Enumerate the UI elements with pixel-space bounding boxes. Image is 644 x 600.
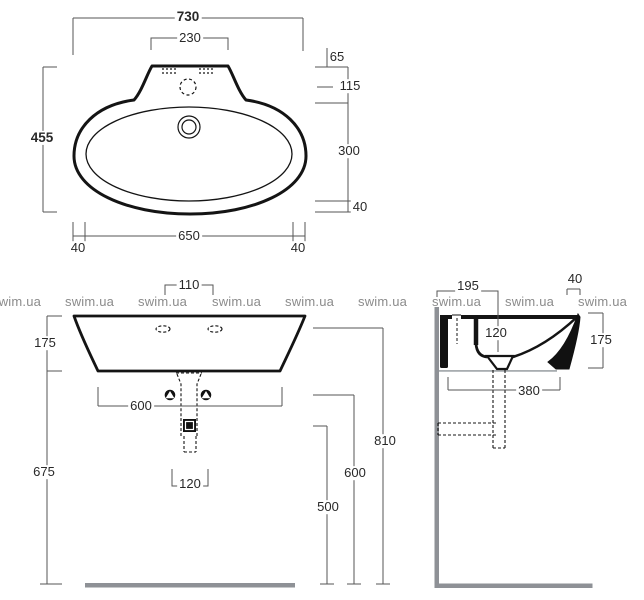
dim-overall-depth: 455 (29, 131, 56, 145)
dim-side-body-height: 175 (588, 333, 614, 347)
basin-back-section (440, 315, 448, 368)
drain-funnel (487, 356, 513, 369)
dim-tap-hole-spacing: 110 (177, 278, 202, 292)
fixing-bolt-icon (201, 390, 212, 401)
drain-valve (183, 419, 196, 432)
dim-bowl-length: 300 (336, 144, 362, 158)
dim-bottom-width: 650 (176, 229, 202, 243)
technical-drawing-page: swim.ua swim.ua swim.ua swim.ua swim.ua … (0, 0, 644, 600)
dim-fixing-depth: 380 (516, 384, 542, 398)
basin-outline-front (74, 316, 305, 371)
dim-rim-height: 810 (372, 434, 398, 448)
dim-drain-offset: 120 (177, 477, 203, 491)
dim-tap-deck-width: 230 (177, 31, 203, 45)
dim-back-edge: 65 (328, 50, 346, 64)
dim-overall-width: 730 (175, 10, 202, 24)
front-lip (548, 314, 580, 369)
dim-front-edge: 40 (566, 272, 584, 286)
floor-line (85, 583, 295, 588)
basin-outline-plan (74, 66, 306, 214)
dim-front-rim: 40 (351, 200, 369, 214)
dim-tap-hole-offset: 115 (338, 79, 363, 93)
dim-trap-outlet-height: 500 (315, 500, 341, 514)
side-view-dimension-lines (437, 289, 603, 390)
dim-inlet-height: 600 (342, 466, 368, 480)
dim-bowl-depth: 120 (483, 326, 509, 340)
dim-bottom-left-offset: 40 (69, 241, 87, 255)
dim-bottom-right-offset: 40 (289, 241, 307, 255)
side-view (435, 307, 593, 588)
drain-pipe-dashed (176, 373, 202, 452)
wall-line (435, 307, 440, 588)
dim-height-under-body: 675 (31, 465, 57, 479)
under-basin-line (439, 370, 557, 372)
dim-back-depth: 195 (455, 279, 481, 293)
top-view (74, 66, 306, 214)
dim-body-height: 175 (32, 336, 58, 350)
front-view (74, 316, 305, 588)
fixing-bolt-icon (165, 390, 176, 401)
floor-line (435, 584, 593, 589)
dim-fixing-hole-spacing: 600 (128, 399, 154, 413)
